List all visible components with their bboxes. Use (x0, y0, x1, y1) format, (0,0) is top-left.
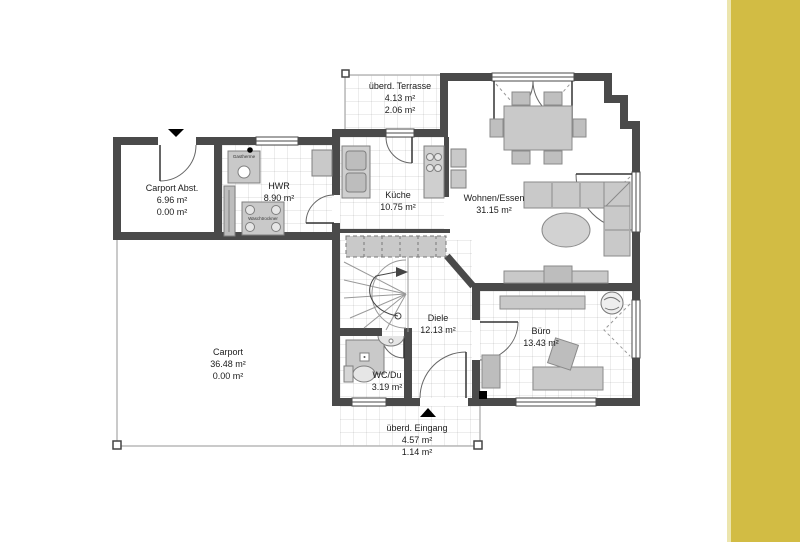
room-label-buero: Büro13.43 m² (523, 325, 559, 349)
floorplan-page: überd. Terrasse4.13 m²2.06 m² Carport Ab… (0, 0, 800, 542)
diagonal-wall (447, 256, 473, 286)
room-label-kueche: Küche10.75 m² (380, 189, 416, 213)
appliance-label-gastherme: Gastherme (233, 154, 255, 159)
coffee-table (542, 213, 590, 247)
room-label-eingang: überd. Eingang4.57 m²1.14 m² (386, 422, 447, 458)
room-label-terrasse: überd. Terrasse4.13 m²2.06 m² (369, 80, 431, 116)
appliance-label-washer: Waschtrockner (248, 216, 278, 221)
plant-icon (601, 292, 623, 314)
room-label-carport: Carport36.48 m²0.00 m² (210, 346, 246, 382)
stairs-upper-flight (346, 236, 446, 257)
room-label-diele: Diele12.13 m² (420, 312, 456, 336)
room-label-wohnen-essen: Wohnen/Essen31.15 m² (464, 192, 525, 216)
post-markers (113, 70, 482, 449)
room-label-wc-du: WC/Du3.19 m² (372, 369, 403, 393)
room-label-carport-abst: Carport Abst.6.96 m²0.00 m² (146, 182, 199, 218)
sideboard-tv (504, 266, 608, 283)
room-label-hwr: HWR8.90 m² (264, 180, 295, 204)
